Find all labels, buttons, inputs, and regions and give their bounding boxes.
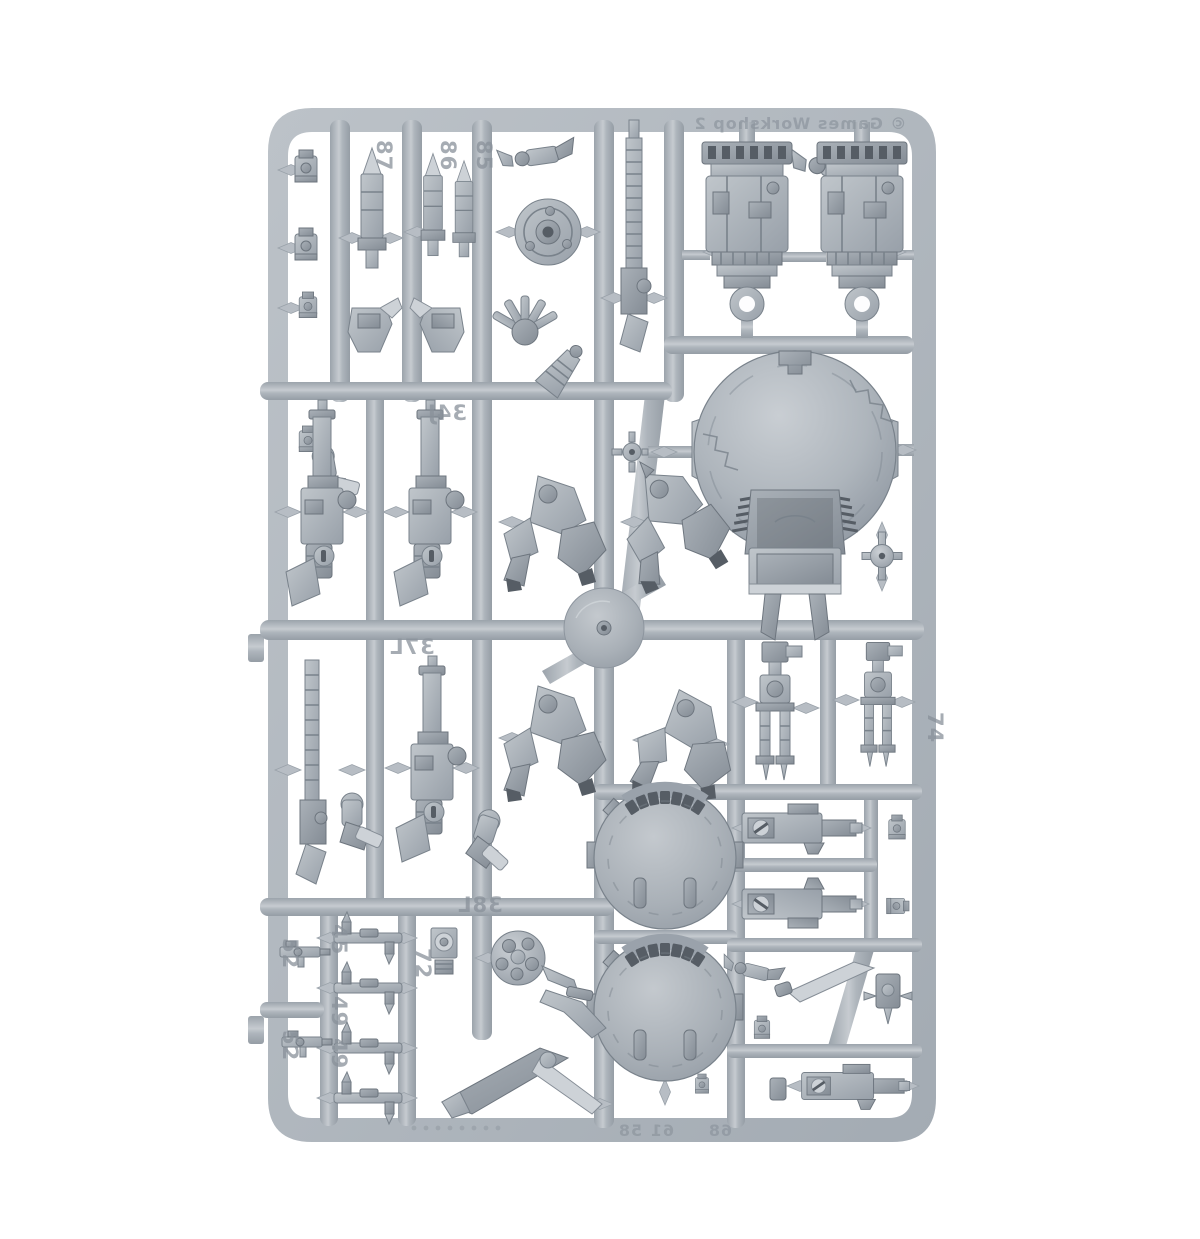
part-number: 85: [472, 140, 496, 171]
pulse-rifle-part: [396, 656, 466, 862]
copyright-text: © Games Workshop 2: [694, 114, 907, 133]
moulding-hub: [564, 588, 644, 668]
part-number: 87: [372, 140, 396, 171]
part-number: 74: [923, 712, 947, 743]
photo-stage: 87 86 85 © Games Workshop 2 34J 37L 38L …: [0, 0, 1200, 1239]
large-dome-part: [692, 351, 898, 640]
sprue-photo: 87 86 85 © Games Workshop 2 34J 37L 38L …: [0, 0, 1200, 1239]
frame-tab: [248, 1016, 264, 1044]
drone-carbine-part: [742, 878, 862, 928]
drone-carbine-part: [742, 804, 862, 854]
small-fitting-part: [695, 1074, 708, 1093]
part-number: 52: [278, 1030, 302, 1061]
turret-part: [702, 142, 792, 321]
sprue: 87 86 85 © Games Workshop 2 34J 37L 38L …: [248, 108, 947, 1142]
small-fitting-part: [754, 1016, 769, 1038]
socket-sphere-part: [491, 931, 593, 1001]
part-number: 86: [436, 140, 460, 171]
pulse-rifle-part: [286, 400, 356, 606]
sphere-stick-part: [862, 532, 902, 580]
part-number: 49: [327, 1038, 351, 1069]
antenna-linkage-part: [334, 1072, 402, 1124]
part-number: 49: [327, 996, 351, 1027]
drone-carbine-part: [802, 1064, 910, 1109]
part-number: 37L: [389, 635, 435, 659]
crouching-legs-part: [504, 686, 606, 802]
missile-part: [453, 161, 475, 257]
turret-part: [817, 142, 907, 321]
part-number: 45: [327, 924, 351, 955]
small-fitting-part: [887, 898, 909, 913]
sensor-post-part: [864, 974, 912, 1024]
hatch-dial-part: [515, 199, 581, 265]
crouching-legs-part: [504, 476, 606, 592]
part-number: 34J: [427, 401, 467, 425]
spiked-sphere-part: [492, 296, 558, 345]
small-fitting-part: [889, 815, 906, 839]
part-number: 38L: [457, 893, 503, 917]
small-fitting-part: [299, 292, 317, 318]
grip-part: [770, 1078, 786, 1100]
part-number: 68: [708, 1121, 732, 1140]
small-fitting-part: [295, 150, 317, 182]
part-number: 58: [618, 1121, 642, 1140]
sensor-mast-part: [756, 642, 802, 780]
part-number: 72: [411, 948, 435, 979]
small-fitting-part: [295, 228, 317, 260]
claw-arm-part: [496, 137, 576, 170]
frame-tab: [248, 634, 264, 662]
part-number: 52: [278, 938, 302, 969]
part-number: 61: [650, 1121, 674, 1140]
bracket-part: [348, 298, 402, 352]
ribbed-rifle-part: [620, 120, 651, 352]
pulse-rifle-part: [394, 400, 464, 606]
stabilizer-fin-part: [442, 1048, 602, 1118]
rail-rifle-part: [296, 660, 327, 884]
